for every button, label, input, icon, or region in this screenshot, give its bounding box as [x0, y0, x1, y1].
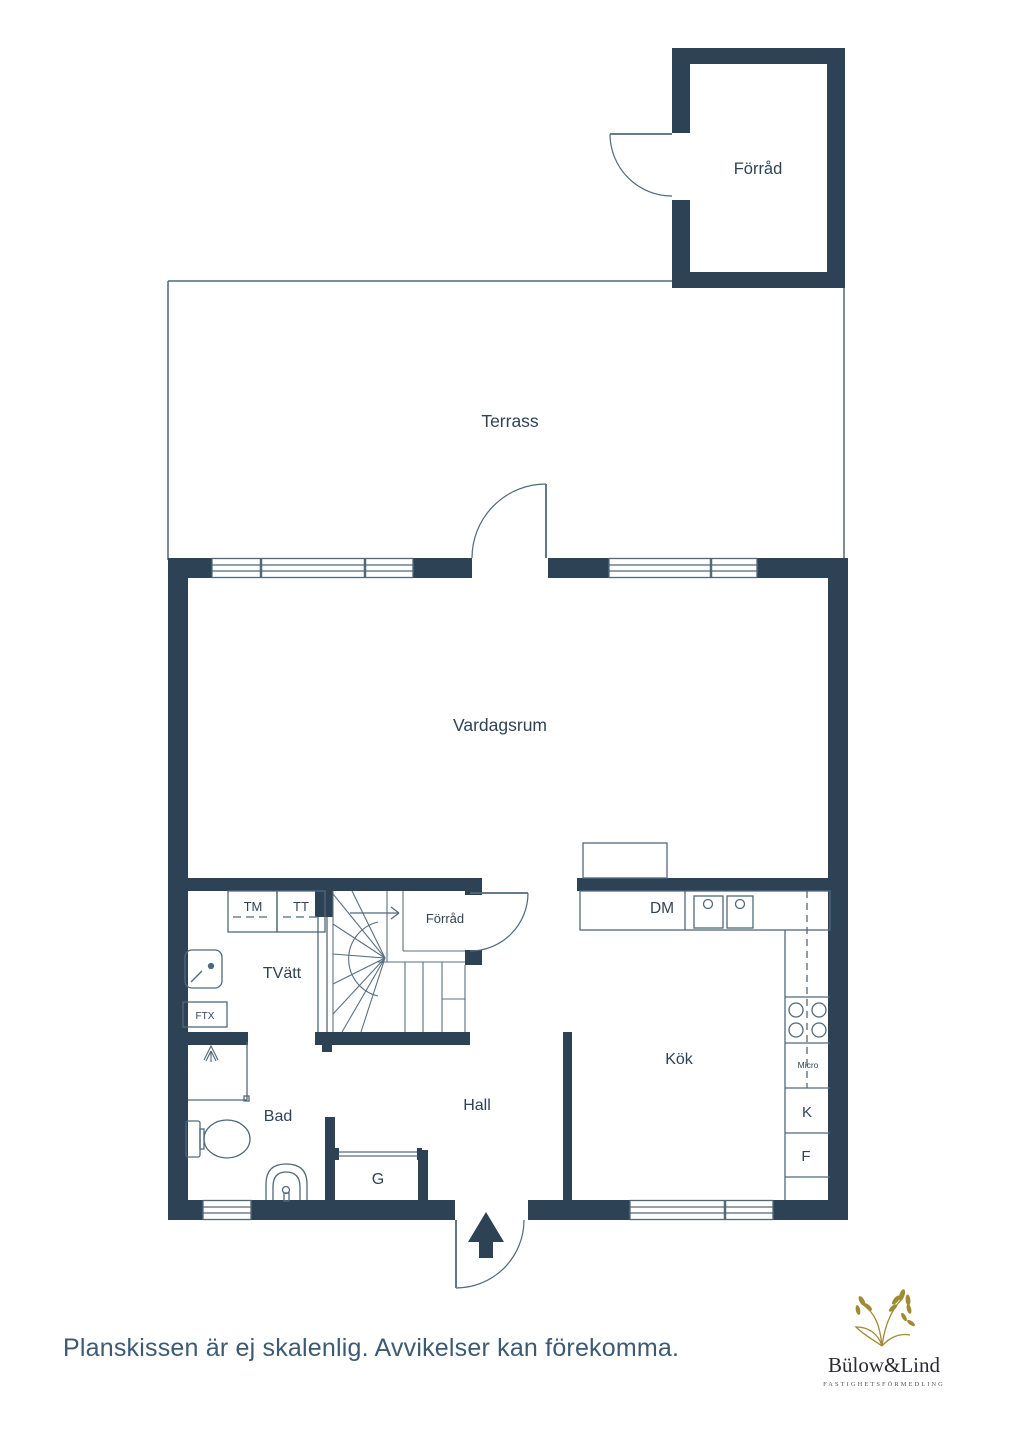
low-partition-lines	[318, 917, 327, 1032]
disclaimer-text: Planskissen är ej skalenlig. Avvikelser …	[63, 1334, 679, 1363]
logo-name: Bülow&Lind	[818, 1353, 950, 1378]
room-label-terrass: Terrass	[481, 411, 539, 431]
kitchen-counter	[580, 891, 830, 930]
floor-plan-drawing: Terrass Vardagsrum Förråd Förråd TVätt B…	[0, 0, 1024, 1448]
shower-head-icon	[204, 1046, 218, 1062]
room-label-bad: Bad	[264, 1108, 292, 1125]
terrace-door	[472, 484, 546, 558]
logo-tagline: FASTIGHETSFÖRMEDLING	[818, 1381, 950, 1388]
storage-door	[610, 134, 672, 196]
washbasin	[266, 1164, 307, 1201]
appliance-label-ftx: FTX	[196, 1011, 215, 1022]
logo-wheat-ornament	[818, 1283, 950, 1347]
appliance-label-frys: F	[801, 1148, 810, 1165]
appliance-label-tm: TM	[244, 899, 263, 914]
shower-area	[188, 1042, 249, 1101]
room-label-kok: Kök	[665, 1051, 694, 1068]
agency-logo: Bülow&Lind FASTIGHETSFÖRMEDLING	[818, 1283, 950, 1388]
room-label-garderob: G	[372, 1171, 384, 1188]
sideboard	[583, 843, 667, 878]
room-label-vardagsrum: Vardagsrum	[453, 715, 547, 735]
kitchen-fixtures	[580, 843, 830, 1200]
understairs-storage-door	[470, 893, 528, 951]
appliance-label-tt: TT	[293, 899, 309, 914]
stairs-direction-arrow	[350, 907, 399, 919]
entrance-arrow	[468, 1212, 504, 1258]
room-label-hall: Hall	[463, 1097, 491, 1114]
appliance-label-micro: Micro	[798, 1060, 819, 1070]
hob	[789, 1003, 826, 1037]
toilet	[186, 1120, 250, 1158]
room-label-tvatt: TVätt	[263, 965, 302, 982]
room-label-forrad-top: Förråd	[734, 160, 783, 178]
floor-plan-page: Terrass Vardagsrum Förråd Förråd TVätt B…	[0, 0, 1024, 1448]
wardrobe-rail	[334, 1148, 422, 1160]
appliance-label-dm: DM	[650, 900, 674, 917]
appliance-label-kyl: K	[802, 1104, 812, 1121]
laundry-sink	[185, 950, 222, 988]
room-label-forrad-understairs: Förråd	[426, 911, 464, 926]
